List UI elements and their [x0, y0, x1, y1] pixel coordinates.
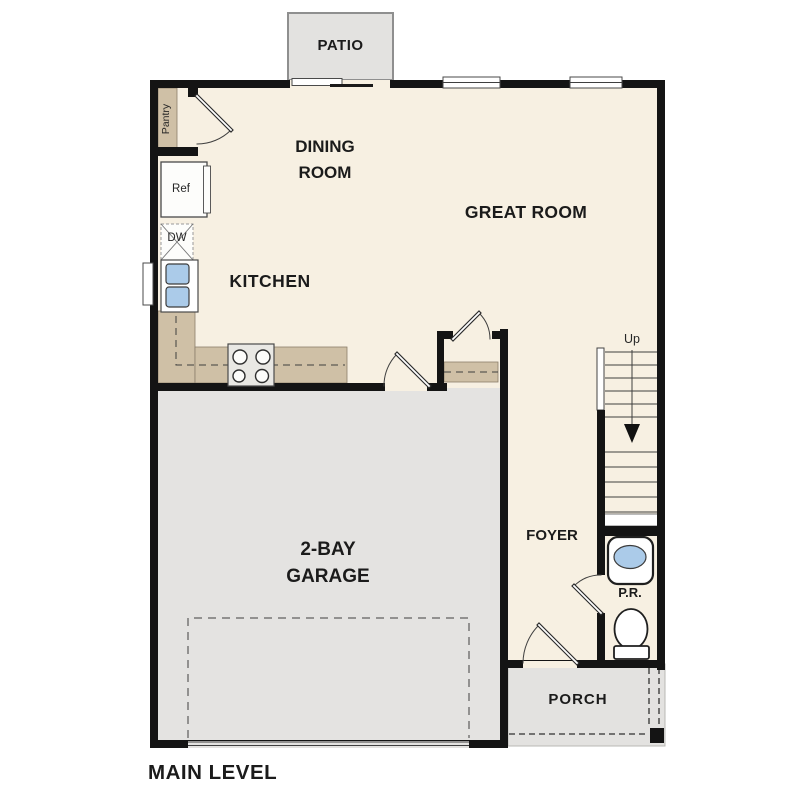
- stove-burner-3: [233, 370, 245, 382]
- foyer-label: FOYER: [503, 527, 601, 544]
- wall-closet-left: [437, 339, 444, 391]
- window-kitchen: [143, 263, 153, 305]
- stair-landing: [604, 514, 658, 526]
- wall-closet-left-stub: [437, 331, 453, 339]
- dining-room-label: DINING ROOM: [269, 134, 381, 186]
- patio-slider-panel-2: [330, 84, 373, 87]
- garage-entry-gap: [385, 383, 427, 391]
- garage-label: 2-BAY GARAGE: [262, 536, 394, 590]
- kitchen-label: KITCHEN: [202, 271, 338, 292]
- stair-railing: [597, 348, 604, 410]
- floor-plan-drawing: [0, 0, 810, 810]
- kitchen-sink-basin-2: [166, 287, 189, 307]
- porch-label: PORCH: [517, 691, 639, 708]
- up-label: Up: [613, 332, 651, 346]
- front-door-gap: [523, 661, 577, 668]
- toilet-tank: [614, 646, 649, 659]
- stove-burner-4: [256, 370, 269, 383]
- porch-column: [650, 728, 664, 743]
- stove-burner-1: [233, 350, 247, 364]
- wall-stairs-left: [597, 410, 605, 528]
- kitchen-sink-basin-1: [166, 264, 189, 284]
- wall-foyer-pr-lower: [597, 613, 605, 668]
- wall-stairs-pr: [597, 526, 665, 536]
- toilet-bowl: [615, 609, 648, 649]
- pr-sink-basin: [614, 546, 646, 569]
- wall-closet-right-stub: [492, 331, 508, 339]
- plan-title: MAIN LEVEL: [148, 761, 388, 785]
- great-room-label: GREAT ROOM: [430, 202, 622, 223]
- floors: [158, 88, 665, 746]
- dishwasher-label: DW: [153, 232, 201, 244]
- wall-left: [150, 80, 158, 748]
- floor-plan-main-level: PATIO DINING ROOM GREAT ROOM KITCHEN 2-B…: [0, 0, 810, 810]
- patio-label: PATIO: [288, 37, 393, 54]
- pantry-label: Pantry: [160, 90, 176, 148]
- powder-room-label: P.R.: [601, 585, 659, 600]
- refrigerator-label: Ref: [157, 183, 205, 195]
- wall-right: [657, 80, 665, 670]
- wall-pantry-bottom-stub: [157, 147, 198, 156]
- stove-burner-2: [256, 350, 270, 364]
- wall-garage-right: [500, 383, 508, 748]
